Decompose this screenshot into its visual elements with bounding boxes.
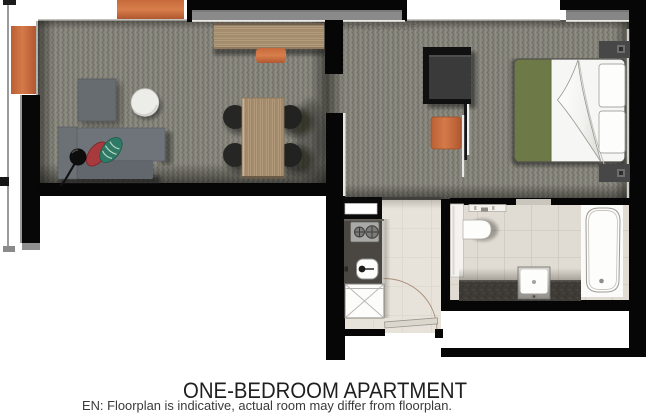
svg-text:EN: Floorplan is indicative, a: EN: Floorplan is indicative, actual room… bbox=[82, 399, 452, 413]
